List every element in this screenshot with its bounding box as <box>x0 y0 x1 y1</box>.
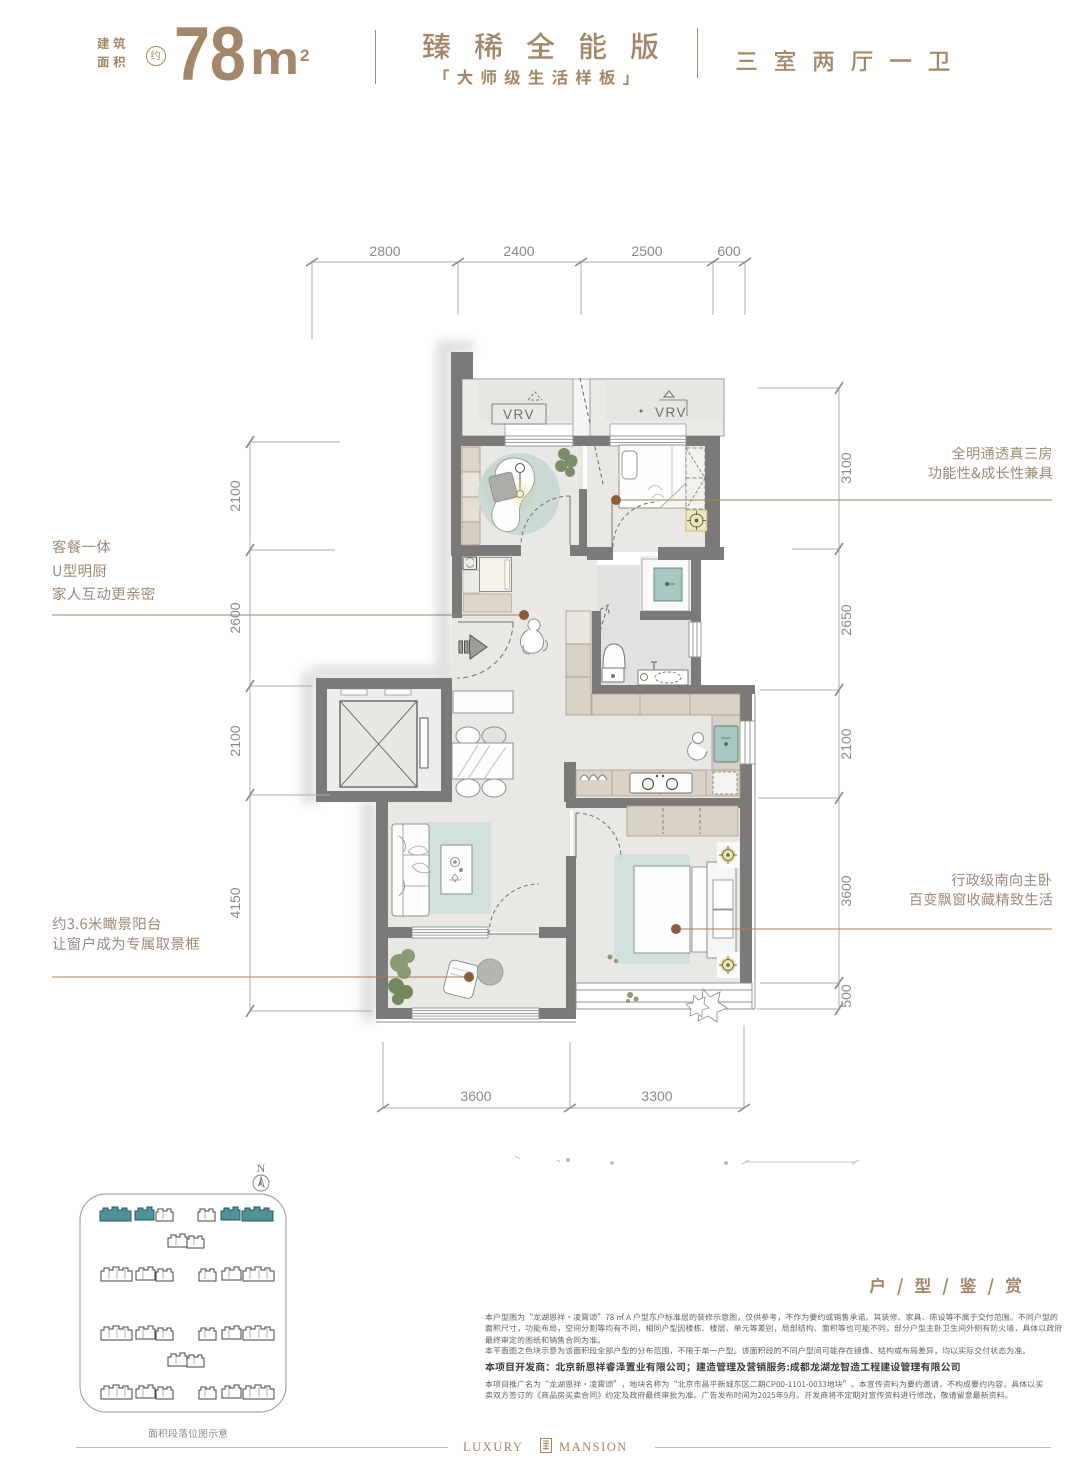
svg-text:500: 500 <box>838 984 854 1008</box>
svg-text:N: N <box>257 1161 266 1175</box>
svg-text:2800: 2800 <box>369 243 400 259</box>
svg-text:3100: 3100 <box>838 452 854 483</box>
svg-text:2100: 2100 <box>227 725 243 756</box>
svg-text:4150: 4150 <box>227 887 243 918</box>
svg-text:2650: 2650 <box>838 604 854 635</box>
svg-text:2100: 2100 <box>227 480 243 511</box>
svg-text:VRV: VRV <box>503 407 535 422</box>
svg-text:VRV: VRV <box>655 405 687 420</box>
svg-text:3300: 3300 <box>641 1088 672 1104</box>
svg-text:3600: 3600 <box>460 1088 491 1104</box>
svg-text:2600: 2600 <box>227 602 243 633</box>
svg-text:600: 600 <box>717 243 741 259</box>
svg-text:2400: 2400 <box>503 243 534 259</box>
svg-text:2100: 2100 <box>838 728 854 759</box>
svg-text:3600: 3600 <box>838 875 854 906</box>
svg-text:2500: 2500 <box>631 243 662 259</box>
